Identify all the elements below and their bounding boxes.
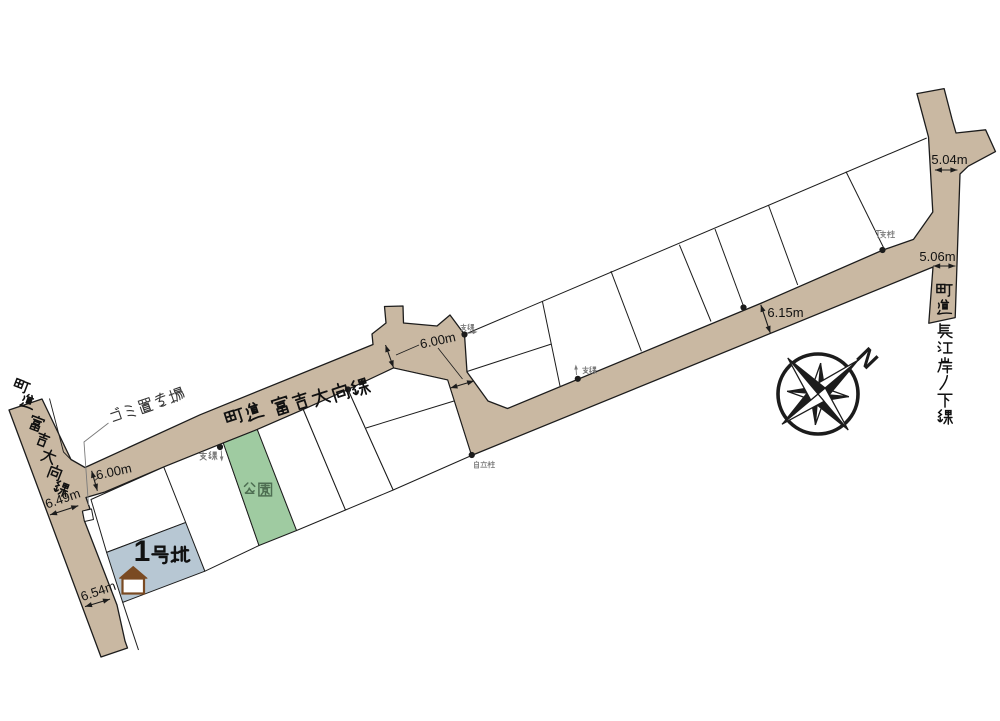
svg-text:1: 1 — [134, 535, 151, 568]
svg-text:5.04m: 5.04m — [931, 152, 967, 167]
svg-text:6.15m: 6.15m — [767, 305, 803, 320]
svg-text:5.06m: 5.06m — [919, 249, 955, 264]
